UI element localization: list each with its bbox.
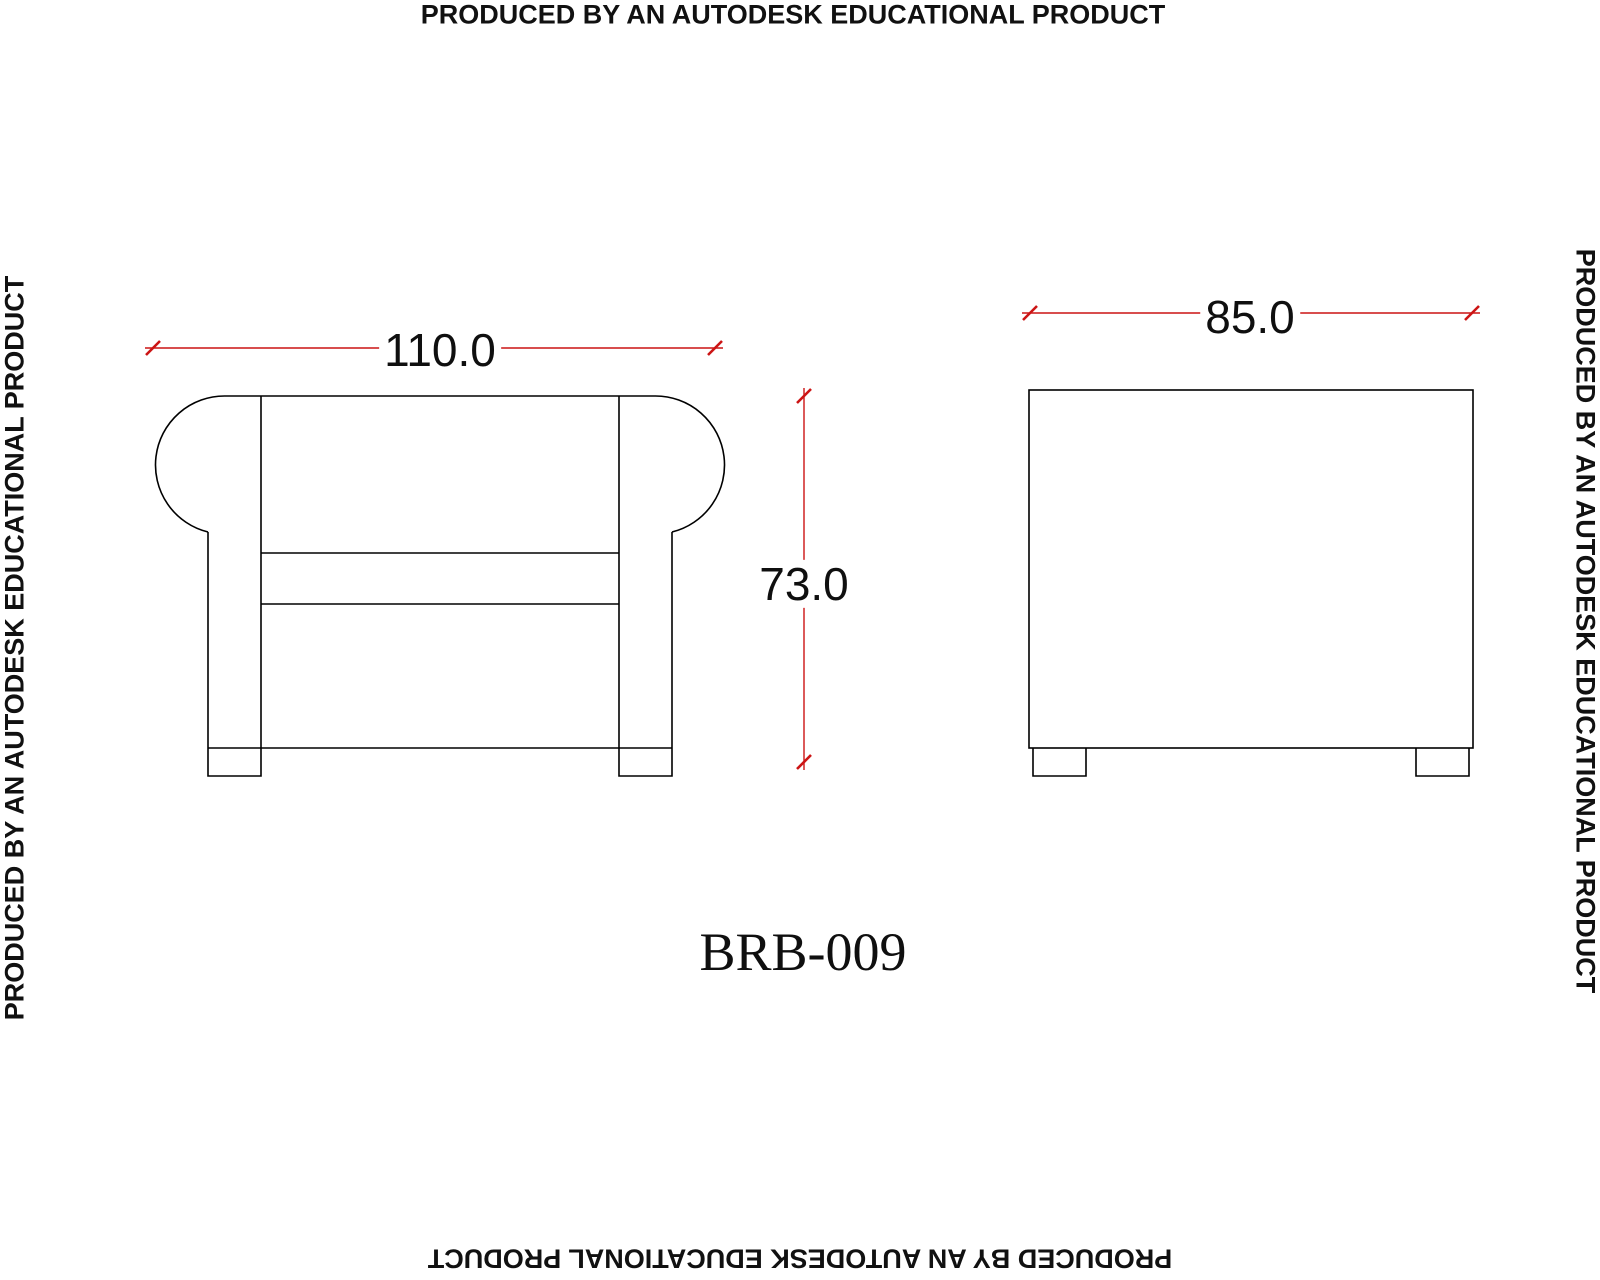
watermark-right: PRODUCED BY AN AUTODESK EDUCATIONAL PROD…: [1570, 249, 1600, 994]
front-width-dim-value: 110.0: [379, 326, 501, 374]
front-height-dim-value: 73.0: [754, 560, 854, 608]
side-depth-dim-value: 85.0: [1200, 293, 1300, 341]
front-left-foot: [208, 748, 261, 776]
side-right-foot: [1416, 748, 1469, 776]
drawing-linework: [0, 0, 1600, 1280]
side-elevation-view: [1029, 390, 1473, 776]
front-left-arm-roll: [155, 396, 225, 532]
dimension-lines: [145, 306, 1480, 770]
front-right-foot: [619, 748, 672, 776]
drawing-title: BRB-009: [699, 921, 906, 983]
front-right-arm-roll: [655, 396, 725, 532]
watermark-left: PRODUCED BY AN AUTODESK EDUCATIONAL PROD…: [0, 276, 31, 1021]
cad-sheet: 110.0 73.0 85.0 BRB-009 PRODUCED BY AN A…: [0, 0, 1600, 1280]
front-elevation-view: [155, 396, 724, 776]
side-left-foot: [1033, 748, 1086, 776]
watermark-top: PRODUCED BY AN AUTODESK EDUCATIONAL PROD…: [421, 0, 1166, 31]
side-body-outline: [1029, 390, 1473, 748]
watermark-bottom: PRODUCED BY AN AUTODESK EDUCATIONAL PROD…: [428, 1243, 1173, 1274]
